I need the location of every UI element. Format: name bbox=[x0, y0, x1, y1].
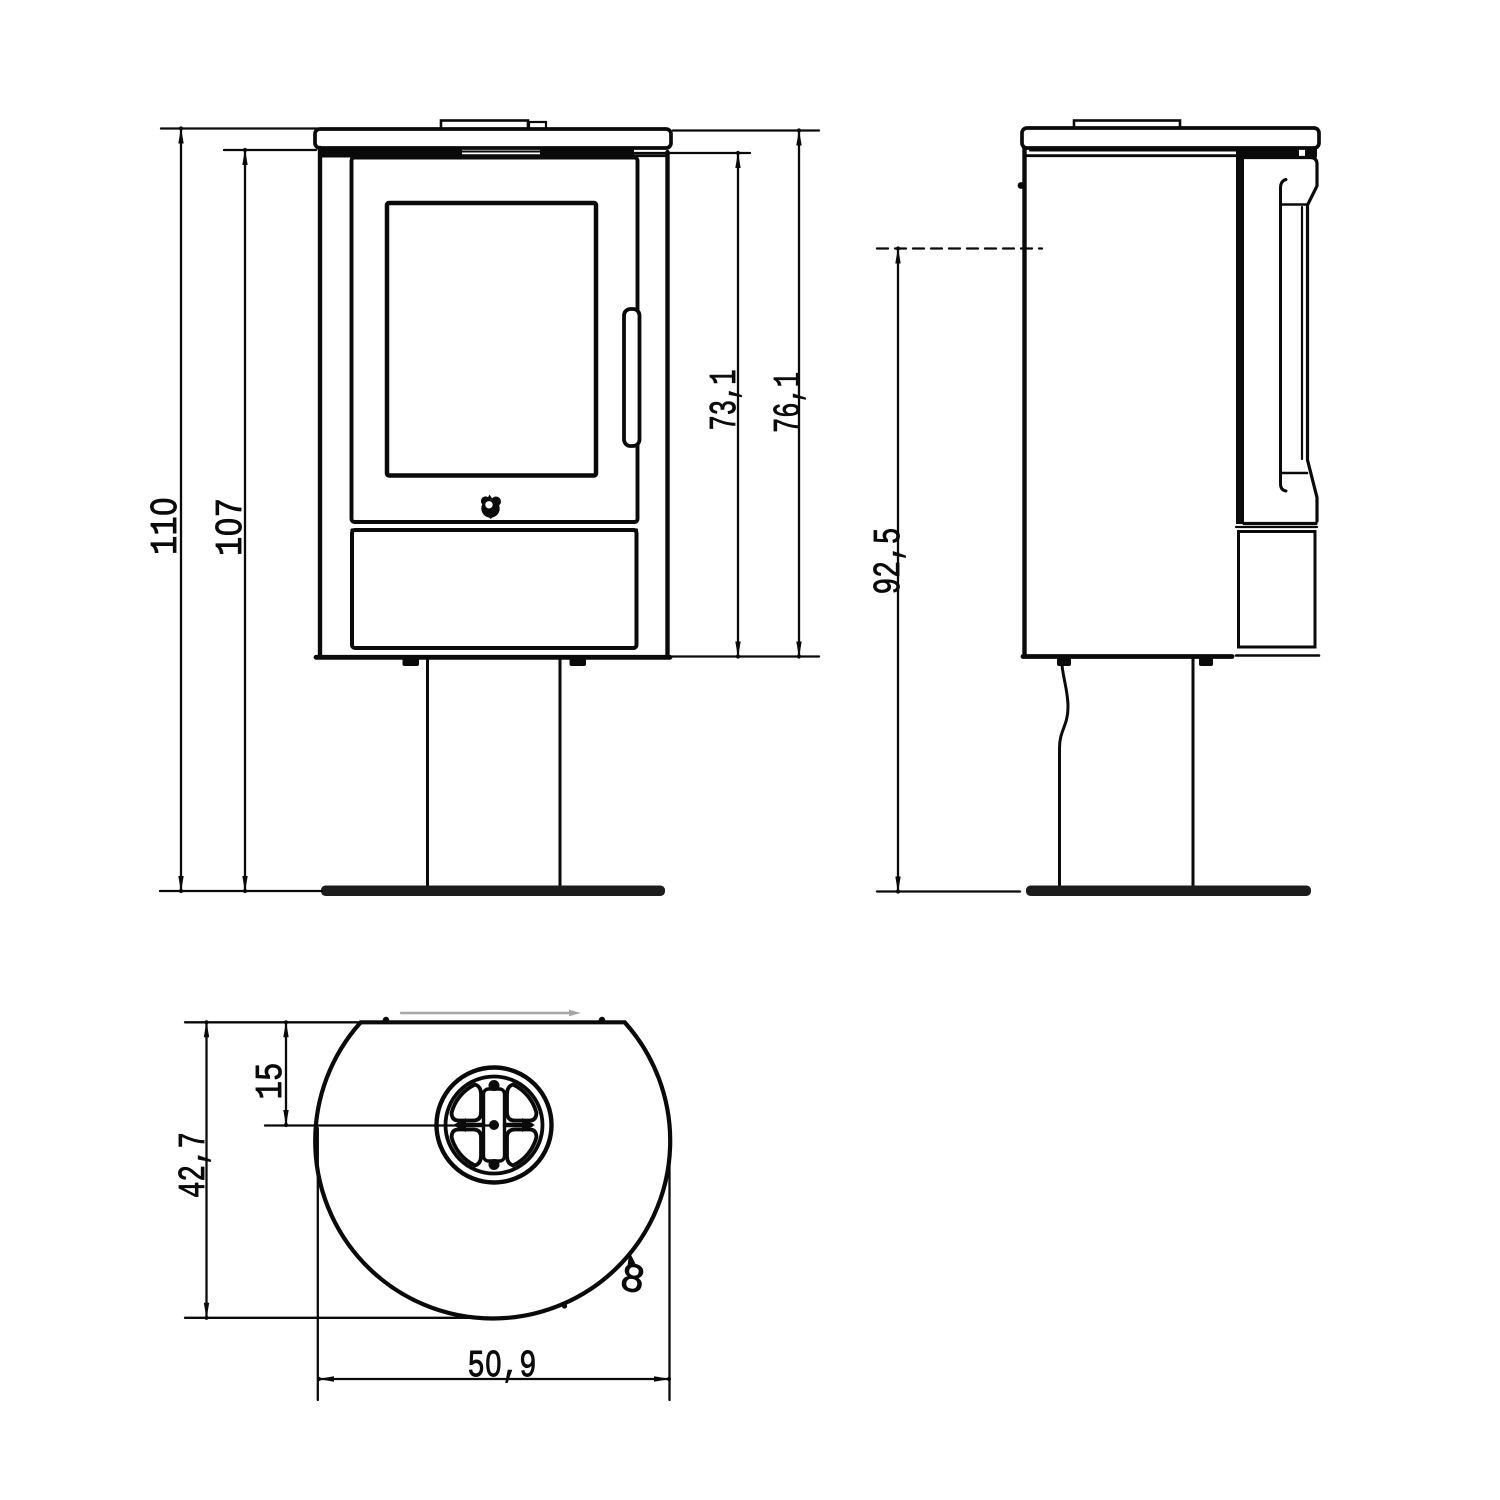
svg-text:76,1: 76,1 bbox=[768, 372, 811, 433]
svg-text:73,1: 73,1 bbox=[704, 370, 747, 431]
svg-text:42,7: 42,7 bbox=[173, 1132, 216, 1198]
svg-text:15: 15 bbox=[250, 1063, 293, 1100]
svg-text:50,9: 50,9 bbox=[468, 1345, 537, 1388]
svg-text:92,5: 92,5 bbox=[868, 528, 911, 595]
svg-text:107: 107 bbox=[210, 498, 253, 556]
